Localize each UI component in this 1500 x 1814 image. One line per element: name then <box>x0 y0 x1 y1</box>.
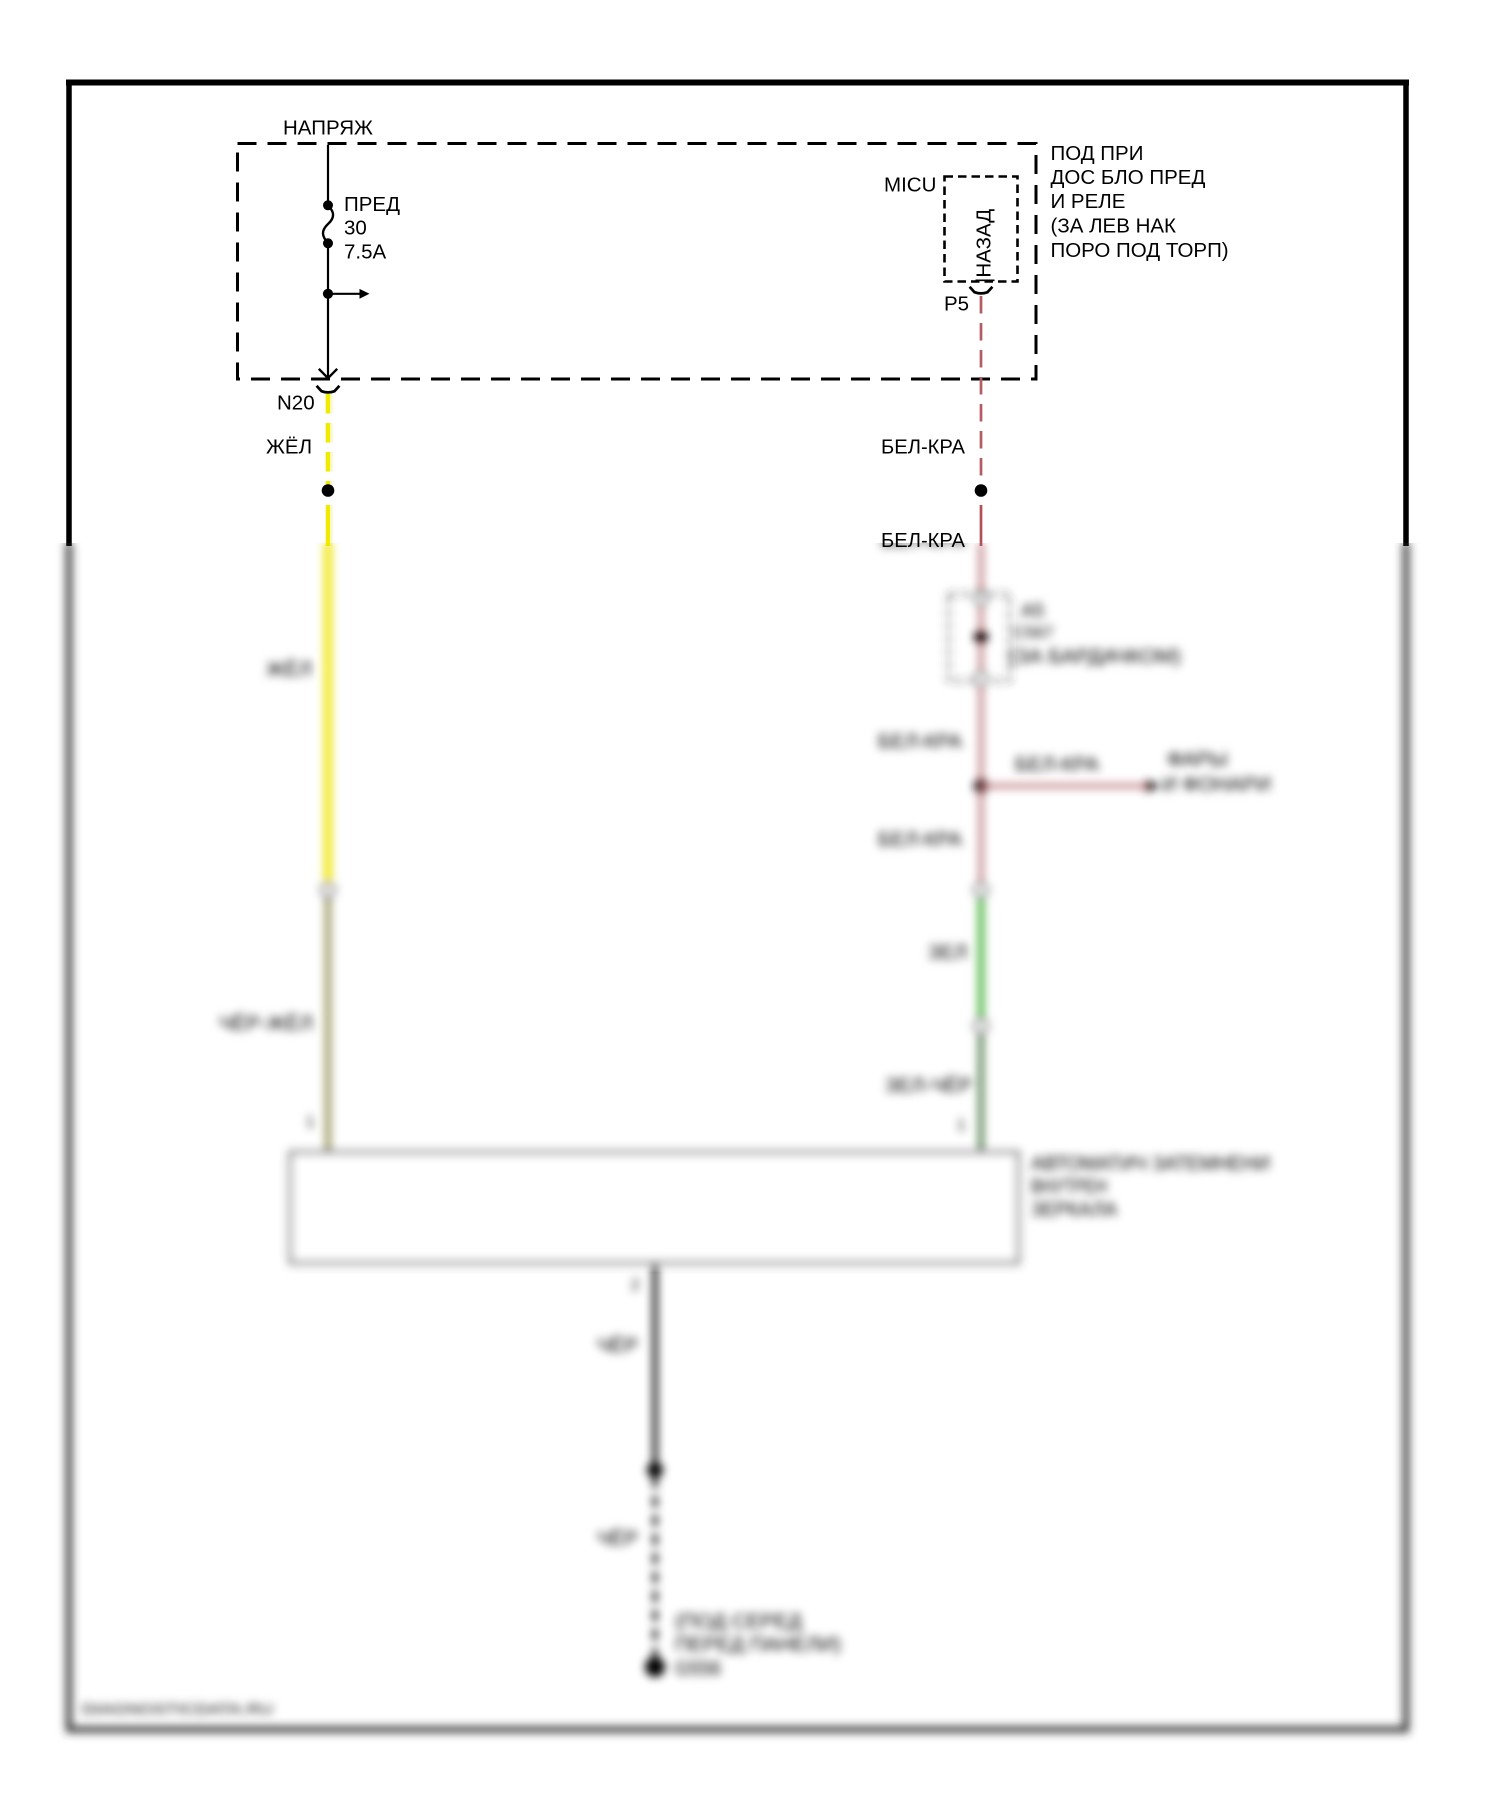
svg-text:30: 30 <box>344 217 367 240</box>
svg-text:ЧЁР: ЧЁР <box>597 1527 638 1550</box>
svg-text:АВТОМАТИЧ ЗАТЕМНЕНИ: АВТОМАТИЧ ЗАТЕМНЕНИ <box>1031 1152 1270 1175</box>
svg-text:И ФОНАРИ: И ФОНАРИ <box>1162 773 1271 796</box>
svg-text:ЖЁЛ: ЖЁЛ <box>266 658 312 681</box>
svg-text:ЖЁЛ: ЖЁЛ <box>266 436 312 459</box>
svg-text:ПРЕД: ПРЕД <box>344 193 400 216</box>
svg-text:G556: G556 <box>675 1658 721 1680</box>
svg-text:ФАРЫ: ФАРЫ <box>1167 748 1228 771</box>
svg-text:БЕЛ-КРА: БЕЛ-КРА <box>878 828 962 851</box>
svg-text:N20: N20 <box>277 392 315 415</box>
svg-text:А5: А5 <box>1021 601 1044 622</box>
svg-text:MICU: MICU <box>884 174 936 197</box>
svg-text:(ЗА БАРДАЧКОМ): (ЗА БАРДАЧКОМ) <box>1009 645 1181 668</box>
svg-text:ВНУТРЕН: ВНУТРЕН <box>1031 1175 1107 1198</box>
svg-text:|НАЗАД: |НАЗАД <box>973 209 996 283</box>
svg-text:БЕЛ-КРА: БЕЛ-КРА <box>878 730 962 753</box>
svg-text:(ЗА ЛЕВ НАК: (ЗА ЛЕВ НАК <box>1051 215 1177 238</box>
svg-text:ПОРО ПОД ТОРП): ПОРО ПОД ТОРП) <box>1051 239 1229 262</box>
svg-text:И РЕЛЕ: И РЕЛЕ <box>1051 190 1126 213</box>
svg-text:ДОС БЛО ПРЕД: ДОС БЛО ПРЕД <box>1051 166 1206 189</box>
svg-text:БЕЛ-КРА: БЕЛ-КРА <box>1015 753 1099 776</box>
svg-text:ЧЁР: ЧЁР <box>597 1334 638 1357</box>
svg-text:1: 1 <box>306 1114 315 1131</box>
svg-text:БЕЛ-КРА: БЕЛ-КРА <box>881 436 965 459</box>
svg-text:ЗЕЛ: ЗЕЛ <box>928 941 968 964</box>
svg-text:ЗЕРКАЛА: ЗЕРКАЛА <box>1031 1198 1117 1221</box>
svg-text:7.5А: 7.5А <box>344 241 386 264</box>
svg-text:С567: С567 <box>1013 623 1054 642</box>
svg-text:ЗЕЛ-ЧЁР: ЗЕЛ-ЧЁР <box>885 1074 972 1097</box>
svg-text:P5: P5 <box>944 293 969 316</box>
svg-text:1: 1 <box>957 1117 966 1134</box>
svg-text:ПЕРЕД ПАНЕЛИ): ПЕРЕД ПАНЕЛИ) <box>675 1634 841 1656</box>
svg-text:(ПОД СЕРЕД: (ПОД СЕРЕД <box>675 1611 802 1633</box>
svg-text:2: 2 <box>631 1277 640 1294</box>
svg-text:DIAGNOSTICDATA.RU: DIAGNOSTICDATA.RU <box>82 1701 273 1718</box>
svg-text:НАПРЯЖ: НАПРЯЖ <box>283 117 373 140</box>
svg-text:ЧЁР-ЖЁЛ: ЧЁР-ЖЁЛ <box>219 1012 313 1035</box>
svg-text:ПОД ПРИ: ПОД ПРИ <box>1051 142 1144 165</box>
